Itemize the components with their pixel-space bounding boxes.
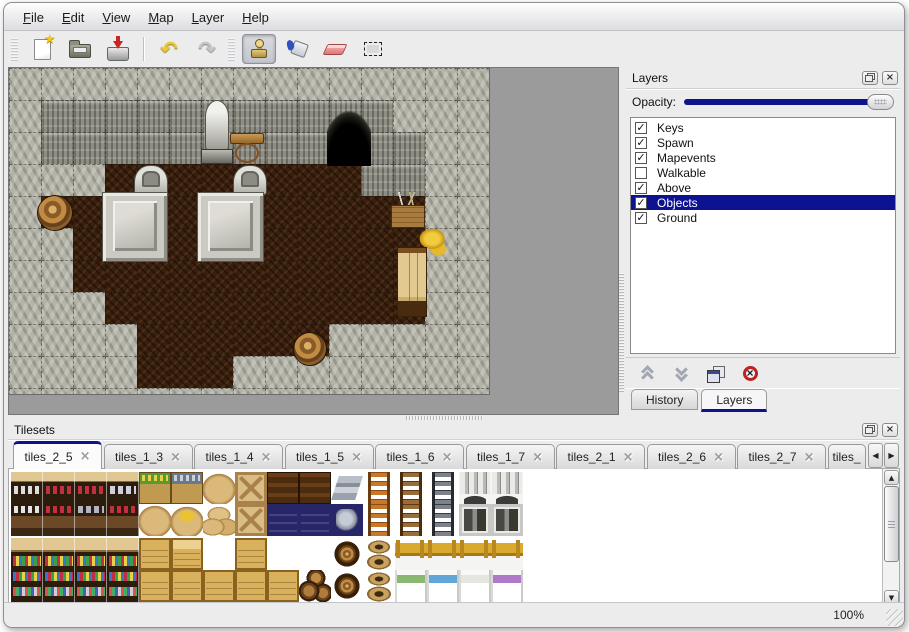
toolbar-handle[interactable]: [11, 37, 18, 61]
map-tile-cliff-rock[interactable]: [393, 324, 425, 356]
map-tile-dark-floor[interactable]: [361, 228, 393, 260]
tab-close-icon[interactable]: ×: [261, 451, 272, 464]
map-tile-dark-floor[interactable]: [201, 292, 233, 324]
tile-shelfA-bot-p[interactable]: [75, 504, 107, 536]
map-tile-cliff-rock[interactable]: [9, 292, 41, 324]
layer-checkbox[interactable]: ✓: [635, 122, 647, 134]
map-tile-cliff-rock[interactable]: [297, 388, 329, 395]
tile-shelfB-top[interactable]: [11, 538, 43, 570]
map-tile-rock-wall-face[interactable]: [169, 132, 201, 164]
tileset-tab-tiles_2_6[interactable]: tiles_2_6×: [647, 444, 736, 469]
tile-crate[interactable]: [235, 570, 267, 602]
map-tile-cliff-rock[interactable]: [265, 388, 297, 395]
map-tile-dark-floor[interactable]: [329, 260, 361, 292]
fill-tool-button[interactable]: [280, 34, 314, 64]
tile-bed-g[interactable]: [395, 570, 427, 602]
map-tile-cliff-rock[interactable]: [457, 228, 489, 260]
tile-pots[interactable]: [363, 570, 395, 602]
layer-name: Keys: [657, 121, 684, 135]
tile-shelfA-bot-r[interactable]: [43, 504, 75, 536]
map-tile-dark-floor[interactable]: [233, 324, 265, 356]
tile-sack-open[interactable]: [171, 504, 203, 536]
tile-shelfA-top-w[interactable]: [11, 472, 43, 504]
layer-checkbox[interactable]: ✓: [635, 197, 647, 209]
map-tile-dark-floor[interactable]: [73, 196, 105, 228]
barrel[interactable]: [294, 333, 326, 365]
tile-crate-open[interactable]: [171, 538, 203, 570]
tileset-tab-tiles_1_7[interactable]: tiles_1_7×: [466, 444, 555, 469]
stamp-tool-button[interactable]: [242, 34, 276, 64]
tile-ladder-b[interactable]: [395, 504, 427, 536]
tile-crate[interactable]: [139, 570, 171, 602]
new-file-button[interactable]: [25, 34, 59, 64]
undo-button[interactable]: ↶: [152, 34, 186, 64]
tile-bed-w[interactable]: [459, 570, 491, 602]
tile-crate[interactable]: [235, 538, 267, 570]
map-tile-rock-wall-face[interactable]: [105, 100, 137, 132]
tileset-tab-label: tiles_2_7: [749, 450, 797, 464]
map-tile-dark-floor[interactable]: [201, 324, 233, 356]
tile-crate-x[interactable]: [235, 472, 267, 504]
map-tile-cliff-rock[interactable]: [41, 292, 73, 324]
map-tile-dark-floor[interactable]: [329, 196, 361, 228]
map-tile-rock-wall-face[interactable]: [105, 132, 137, 164]
tileset-scrollbar[interactable]: ▲ ▼: [882, 469, 899, 606]
menu-map[interactable]: Map: [139, 8, 182, 27]
stone-platform[interactable]: [103, 193, 167, 261]
map-tile-cliff-rock[interactable]: [425, 100, 457, 132]
map-tile-dark-floor[interactable]: [297, 292, 329, 324]
map-tile-dark-floor[interactable]: [265, 228, 297, 260]
gravestone[interactable]: [233, 165, 267, 195]
tileset-tab-tiles_2_7[interactable]: tiles_2_7×: [737, 444, 826, 469]
layer-row-objects[interactable]: ✓Objects: [631, 195, 895, 210]
map-tile-cliff-rock[interactable]: [233, 68, 265, 100]
map-tile-cliff-rock[interactable]: [265, 356, 297, 388]
map-tile-rock-wall-face[interactable]: [137, 132, 169, 164]
map-tile-cliff-rock[interactable]: [41, 324, 73, 356]
tile-barrels[interactable]: [299, 570, 331, 602]
tile-sack-pile[interactable]: [203, 504, 235, 536]
map-tile-cliff-rock[interactable]: [73, 164, 105, 196]
map-tile-cliff-rock[interactable]: [41, 228, 73, 260]
map-tile-cliff-rock[interactable]: [73, 68, 105, 100]
tileset-tab-tiles_[interactable]: tiles_: [828, 444, 866, 469]
map-tile-dark-floor[interactable]: [201, 164, 233, 196]
map-tile-cliff-rock[interactable]: [393, 100, 425, 132]
layers-panel-title: Layers: [632, 71, 668, 85]
tab-scroll-left-button[interactable]: ◀: [868, 443, 883, 468]
map-tile-dark-floor[interactable]: [169, 164, 201, 196]
map-tile-cliff-rock[interactable]: [233, 388, 265, 395]
tile-ladder-g[interactable]: [427, 504, 459, 536]
map-tile-dark-floor[interactable]: [361, 196, 393, 228]
tab-close-icon[interactable]: ×: [442, 451, 453, 464]
tile-shelfB-bot[interactable]: [107, 570, 139, 602]
select-icon: [364, 42, 382, 56]
map-tile-cliff-rock[interactable]: [457, 100, 489, 132]
map-tile-dark-floor[interactable]: [297, 260, 329, 292]
layer-name: Mapevents: [657, 151, 716, 165]
tile-shelfA-bot-w[interactable]: [11, 504, 43, 536]
tileset-tabs: tiles_2_5×tiles_1_3×tiles_1_4×tiles_1_5×…: [8, 441, 900, 468]
map-tile-dark-floor[interactable]: [329, 292, 361, 324]
map-tile-cliff-rock[interactable]: [73, 388, 105, 395]
layer-checkbox[interactable]: [635, 167, 647, 179]
map-tile-cliff-rock[interactable]: [457, 388, 489, 395]
tile-bed-head[interactable]: [427, 538, 459, 570]
map-tile-rock-wall-face[interactable]: [73, 132, 105, 164]
tile-metal[interactable]: [331, 472, 363, 504]
map-canvas[interactable]: [9, 68, 490, 395]
map-tile-cliff-rock[interactable]: [41, 388, 73, 395]
tile-shelfB-bot[interactable]: [43, 570, 75, 602]
map-tile-rock-wall-face[interactable]: [41, 100, 73, 132]
map-tile-rock-wall-face[interactable]: [73, 100, 105, 132]
map-tile-cliff-rock[interactable]: [9, 228, 41, 260]
map-tile-cliff-rock[interactable]: [425, 356, 457, 388]
resize-grip[interactable]: [886, 609, 903, 626]
tab-close-icon[interactable]: ×: [351, 451, 362, 464]
layer-row-spawn[interactable]: ✓Spawn: [631, 135, 895, 150]
tile-ladder-b[interactable]: [395, 472, 427, 504]
tileset-tab-label: tiles_1_6: [387, 450, 435, 464]
map-tile-dark-floor[interactable]: [137, 292, 169, 324]
close-panel-button[interactable]: ×: [882, 71, 898, 85]
map-tile-dark-floor[interactable]: [169, 324, 201, 356]
map-tile-rock-wall-face[interactable]: [169, 100, 201, 132]
layer-row-keys[interactable]: ✓Keys: [631, 120, 895, 135]
map-tile-cliff-rock[interactable]: [457, 68, 489, 100]
stone-platform[interactable]: [198, 193, 263, 261]
tile-bed-head[interactable]: [395, 538, 427, 570]
move-layer-down-button[interactable]: [670, 362, 694, 386]
tileset-tab-label: tiles_2_1: [568, 450, 616, 464]
layer-checkbox[interactable]: ✓: [635, 152, 647, 164]
map-tile-cliff-rock[interactable]: [361, 324, 393, 356]
tab-close-icon[interactable]: ×: [804, 451, 815, 464]
fill-icon: [285, 38, 309, 60]
tile-box-fish[interactable]: [171, 472, 203, 504]
map-tile-cliff-rock[interactable]: [457, 132, 489, 164]
select-tool-button[interactable]: [356, 34, 390, 64]
map-tile-cliff-rock[interactable]: [105, 388, 137, 395]
tile-crate-x[interactable]: [235, 504, 267, 536]
map-tile-dark-floor[interactable]: [105, 292, 137, 324]
map-tile-dark-floor[interactable]: [169, 356, 201, 388]
map-tile-dark-floor[interactable]: [265, 164, 297, 196]
tile-shelfB-top[interactable]: [43, 538, 75, 570]
map-tile-cliff-rock[interactable]: [9, 260, 41, 292]
tile-ladder-o[interactable]: [363, 504, 395, 536]
map-tile-dark-floor[interactable]: [297, 228, 329, 260]
tile-ladder-o[interactable]: [363, 472, 395, 504]
layer-row-ground[interactable]: ✓Ground: [631, 210, 895, 225]
tile-shelfB-top[interactable]: [75, 538, 107, 570]
map-tile-dark-floor[interactable]: [265, 292, 297, 324]
tile-box-veg[interactable]: [139, 472, 171, 504]
tab-close-icon[interactable]: ×: [170, 451, 181, 464]
tile-bed-head[interactable]: [491, 538, 523, 570]
map-tile-cliff-rock[interactable]: [457, 196, 489, 228]
tile-barrel-side[interactable]: [331, 538, 363, 570]
tile-shelfA-top-r[interactable]: [43, 472, 75, 504]
map-tile-dark-floor[interactable]: [169, 260, 201, 292]
opacity-slider-handle[interactable]: [867, 94, 894, 110]
map-tile-cliff-rock[interactable]: [361, 388, 393, 395]
map-tile-cliff-rock[interactable]: [361, 68, 393, 100]
wooden-table[interactable]: [230, 133, 264, 164]
map-tile-cliff-rock[interactable]: [425, 68, 457, 100]
toolbar-handle[interactable]: [228, 37, 235, 61]
tile-barrel-side[interactable]: [331, 570, 363, 602]
tab-layers[interactable]: Layers: [701, 389, 767, 412]
map-tile-dark-floor[interactable]: [265, 324, 297, 356]
layer-checkbox[interactable]: ✓: [635, 212, 647, 224]
move-layer-up-button[interactable]: [636, 362, 660, 386]
map-tile-dark-floor[interactable]: [169, 292, 201, 324]
map-tile-dark-floor[interactable]: [137, 356, 169, 388]
map-tile-cliff-rock[interactable]: [9, 356, 41, 388]
map-tile-cliff-rock[interactable]: [105, 324, 137, 356]
redo-icon: ↷: [198, 39, 216, 60]
map-tile-cliff-rock[interactable]: [41, 260, 73, 292]
map-tile-cliff-rock[interactable]: [425, 196, 457, 228]
cave-entrance[interactable]: [327, 98, 371, 166]
tab-close-icon[interactable]: ×: [623, 451, 634, 464]
tab-close-icon[interactable]: ×: [713, 451, 724, 464]
tile-crate-dark[interactable]: [267, 472, 299, 504]
tab-close-icon[interactable]: ×: [80, 450, 91, 463]
map-tile-cliff-rock[interactable]: [169, 68, 201, 100]
map-tile-cliff-rock[interactable]: [361, 356, 393, 388]
map-tile-cliff-rock[interactable]: [9, 68, 41, 100]
map-tile-cliff-rock[interactable]: [137, 68, 169, 100]
scrollbar-thumb[interactable]: [884, 486, 899, 562]
tileset-tab-tiles_2_1[interactable]: tiles_2_1×: [556, 444, 645, 469]
tile-shelfA-bot-r[interactable]: [107, 504, 139, 536]
tile-shelfB-bot[interactable]: [75, 570, 107, 602]
map-tile-rock-wall-face[interactable]: [233, 100, 265, 132]
map-tile-dark-floor[interactable]: [361, 292, 393, 324]
tileset-tab-tiles_2_5[interactable]: tiles_2_5×: [13, 441, 102, 469]
map-tile-cliff-rock[interactable]: [41, 164, 73, 196]
tile-navy[interactable]: [267, 504, 299, 536]
layer-row-walkable[interactable]: Walkable: [631, 165, 895, 180]
tall-cabinet[interactable]: [397, 247, 427, 317]
gravestone[interactable]: [134, 165, 168, 195]
map-tile-cliff-rock[interactable]: [329, 68, 361, 100]
map-tile-cliff-rock[interactable]: [393, 356, 425, 388]
map-tile-rock-wall-face[interactable]: [297, 132, 329, 164]
duplicate-layer-button[interactable]: [704, 362, 728, 386]
delete-layer-button[interactable]: [738, 362, 762, 386]
map-tile-rock-wall-face[interactable]: [393, 132, 425, 164]
tab-history[interactable]: History: [631, 389, 698, 410]
map-tile-cliff-rock[interactable]: [9, 164, 41, 196]
map-tile-dark-floor[interactable]: [137, 260, 169, 292]
map-tile-cliff-rock[interactable]: [9, 132, 41, 164]
tileset-tab-tiles_1_4[interactable]: tiles_1_4×: [194, 444, 283, 469]
map-tile-dark-floor[interactable]: [73, 228, 105, 260]
map-tile-cliff-rock[interactable]: [425, 164, 457, 196]
redo-button[interactable]: ↷: [190, 34, 224, 64]
map-tile-cliff-rock[interactable]: [169, 388, 201, 395]
map-tile-rock-wall-face[interactable]: [361, 164, 393, 196]
map-tile-cliff-rock[interactable]: [425, 324, 457, 356]
map-tile-dark-floor[interactable]: [105, 164, 137, 196]
map-tile-dark-floor[interactable]: [105, 260, 137, 292]
map-tile-cliff-rock[interactable]: [393, 388, 425, 395]
map-tile-cliff-rock[interactable]: [201, 68, 233, 100]
tileset-tab-tiles_1_6[interactable]: tiles_1_6×: [375, 444, 464, 469]
map-tile-cliff-rock[interactable]: [457, 164, 489, 196]
map-tile-cliff-rock[interactable]: [9, 388, 41, 395]
map-tile-rock-wall-face[interactable]: [265, 132, 297, 164]
map-tile-cliff-rock[interactable]: [457, 356, 489, 388]
tile-arch[interactable]: [491, 472, 523, 504]
menu-view[interactable]: View: [93, 8, 139, 27]
map-tile-rock-wall-face[interactable]: [297, 100, 329, 132]
tile-sack[interactable]: [139, 504, 171, 536]
layer-checkbox[interactable]: ✓: [635, 137, 647, 149]
map-tile-cliff-rock[interactable]: [329, 356, 361, 388]
vertical-splitter[interactable]: [619, 67, 625, 415]
tile-bed-b[interactable]: [427, 570, 459, 602]
close-panel-button[interactable]: ×: [882, 423, 898, 437]
tile-arch[interactable]: [459, 472, 491, 504]
menu-help[interactable]: Help: [233, 8, 278, 27]
map-tile-rock-wall-face[interactable]: [137, 100, 169, 132]
tab-close-icon[interactable]: ×: [532, 451, 543, 464]
tilesets-panel-title: Tilesets: [14, 423, 55, 437]
map-tile-dark-floor[interactable]: [73, 260, 105, 292]
map-tile-cliff-rock[interactable]: [329, 388, 361, 395]
tab-scroll-right-button[interactable]: ▶: [884, 443, 899, 468]
map-tile-dark-floor[interactable]: [233, 260, 265, 292]
barrel[interactable]: [38, 196, 72, 230]
map-tile-dark-floor[interactable]: [265, 260, 297, 292]
tile-crate[interactable]: [139, 538, 171, 570]
tile-crate[interactable]: [171, 570, 203, 602]
map-tile-dark-floor[interactable]: [329, 164, 361, 196]
tile-crate[interactable]: [267, 570, 299, 602]
map-tile-dark-floor[interactable]: [361, 260, 393, 292]
tileset-tab-tiles_1_5[interactable]: tiles_1_5×: [285, 444, 374, 469]
tile-crate[interactable]: [203, 570, 235, 602]
float-panel-button[interactable]: [862, 423, 878, 437]
close-icon: ×: [886, 425, 894, 435]
tileset-content[interactable]: ▲ ▼: [8, 468, 900, 607]
map-tile-dark-floor[interactable]: [297, 164, 329, 196]
map-view[interactable]: [8, 67, 619, 415]
tile-bed-p[interactable]: [491, 570, 523, 602]
float-panel-button[interactable]: [862, 71, 878, 85]
map-tile-dark-floor[interactable]: [201, 356, 233, 388]
map-tile-dark-floor[interactable]: [233, 292, 265, 324]
map-tile-dark-floor[interactable]: [137, 324, 169, 356]
eraser-tool-button[interactable]: [318, 34, 352, 64]
supply-crate[interactable]: [391, 192, 425, 228]
map-tile-cliff-rock[interactable]: [9, 196, 41, 228]
map-tile-cliff-rock[interactable]: [73, 356, 105, 388]
tile-door[interactable]: [491, 504, 523, 536]
tile-shelfB-top[interactable]: [107, 538, 139, 570]
map-tile-cliff-rock[interactable]: [233, 356, 265, 388]
map-tile-dark-floor[interactable]: [201, 260, 233, 292]
save-icon: [107, 47, 129, 61]
layer-name: Above: [657, 181, 691, 195]
map-tile-dark-floor[interactable]: [297, 196, 329, 228]
opacity-slider[interactable]: [684, 93, 894, 111]
layer-row-mapevents[interactable]: ✓Mapevents: [631, 150, 895, 165]
map-tile-dark-floor[interactable]: [169, 228, 201, 260]
scroll-up-button[interactable]: ▲: [884, 470, 899, 485]
map-tile-cliff-rock[interactable]: [137, 388, 169, 395]
map-tile-cliff-rock[interactable]: [201, 388, 233, 395]
map-tile-cliff-rock[interactable]: [457, 324, 489, 356]
tileset-grid: [11, 472, 557, 603]
map-tile-cliff-rock[interactable]: [9, 324, 41, 356]
layer-checkbox[interactable]: ✓: [635, 182, 647, 194]
save-file-button[interactable]: [101, 34, 135, 64]
tile-ladder-g[interactable]: [427, 472, 459, 504]
layer-row-above[interactable]: ✓Above: [631, 180, 895, 195]
map-tile-cliff-rock[interactable]: [73, 292, 105, 324]
tile-shelfA-top-r[interactable]: [75, 472, 107, 504]
panel-tabs: HistoryLayers: [626, 389, 900, 415]
map-tile-cliff-rock[interactable]: [73, 324, 105, 356]
map-tile-cliff-rock[interactable]: [105, 356, 137, 388]
open-file-button[interactable]: [63, 34, 97, 64]
tile-bed-head[interactable]: [459, 538, 491, 570]
map-tile-cliff-rock[interactable]: [329, 324, 361, 356]
map-tile-cliff-rock[interactable]: [9, 100, 41, 132]
map-tile-cliff-rock[interactable]: [41, 68, 73, 100]
menu-file[interactable]: File: [14, 8, 53, 27]
tile-navy[interactable]: [299, 504, 331, 536]
map-tile-cliff-rock[interactable]: [393, 68, 425, 100]
map-tile-cliff-rock[interactable]: [457, 260, 489, 292]
map-tile-cliff-rock[interactable]: [425, 388, 457, 395]
map-tile-cliff-rock[interactable]: [425, 132, 457, 164]
map-tile-dark-floor[interactable]: [329, 228, 361, 260]
menu-layer[interactable]: Layer: [183, 8, 234, 27]
tileset-tab-tiles_1_3[interactable]: tiles_1_3×: [104, 444, 193, 469]
tile-shelfA-top-j[interactable]: [107, 472, 139, 504]
menu-edit[interactable]: Edit: [53, 8, 93, 27]
tile-door[interactable]: [459, 504, 491, 536]
map-tile-rock-wall-face[interactable]: [41, 132, 73, 164]
map-tile-cliff-rock[interactable]: [265, 68, 297, 100]
tile-sack[interactable]: [203, 472, 235, 504]
float-icon: [865, 425, 875, 434]
layer-name: Objects: [657, 196, 698, 210]
map-tile-cliff-rock[interactable]: [425, 260, 457, 292]
map-tile-cliff-rock[interactable]: [41, 356, 73, 388]
tile-navy-metal[interactable]: [331, 504, 363, 536]
map-tile-dark-floor[interactable]: [265, 196, 297, 228]
map-tile-cliff-rock[interactable]: [457, 292, 489, 324]
map-tile-cliff-rock[interactable]: [297, 68, 329, 100]
map-tile-rock-wall-face[interactable]: [265, 100, 297, 132]
map-tile-cliff-rock[interactable]: [425, 292, 457, 324]
map-tile-dark-floor[interactable]: [169, 196, 201, 228]
tile-pots[interactable]: [363, 538, 395, 570]
tile-shelfB-bot[interactable]: [11, 570, 43, 602]
map-tile-cliff-rock[interactable]: [105, 68, 137, 100]
tile-crate-dark[interactable]: [299, 472, 331, 504]
